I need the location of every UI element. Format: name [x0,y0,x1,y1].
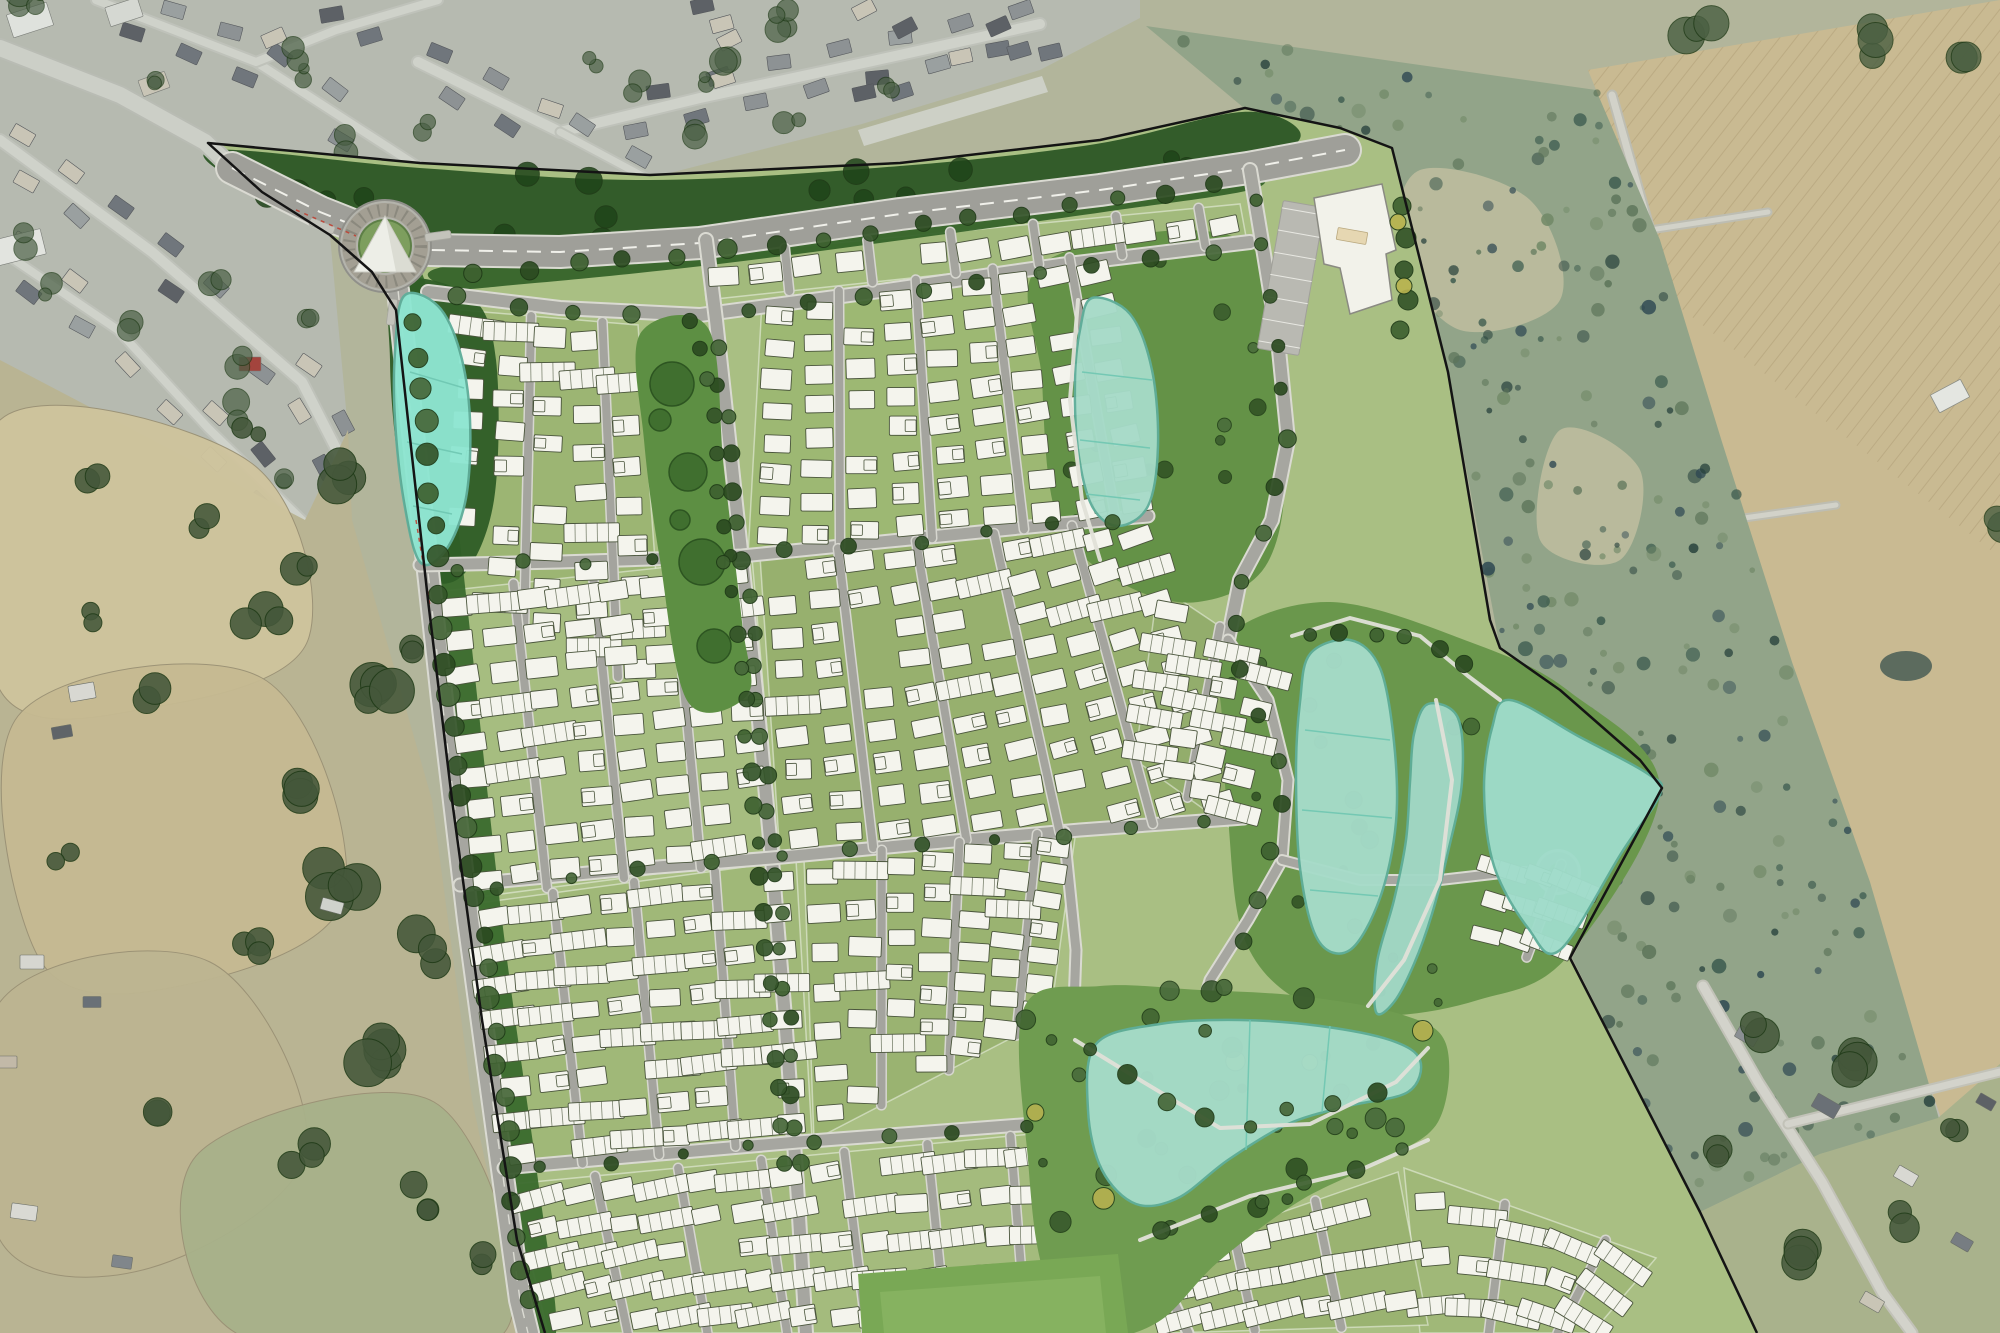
masterplan-aerial-map [0,0,2000,1333]
masterplan-screenshot [0,0,2000,1333]
